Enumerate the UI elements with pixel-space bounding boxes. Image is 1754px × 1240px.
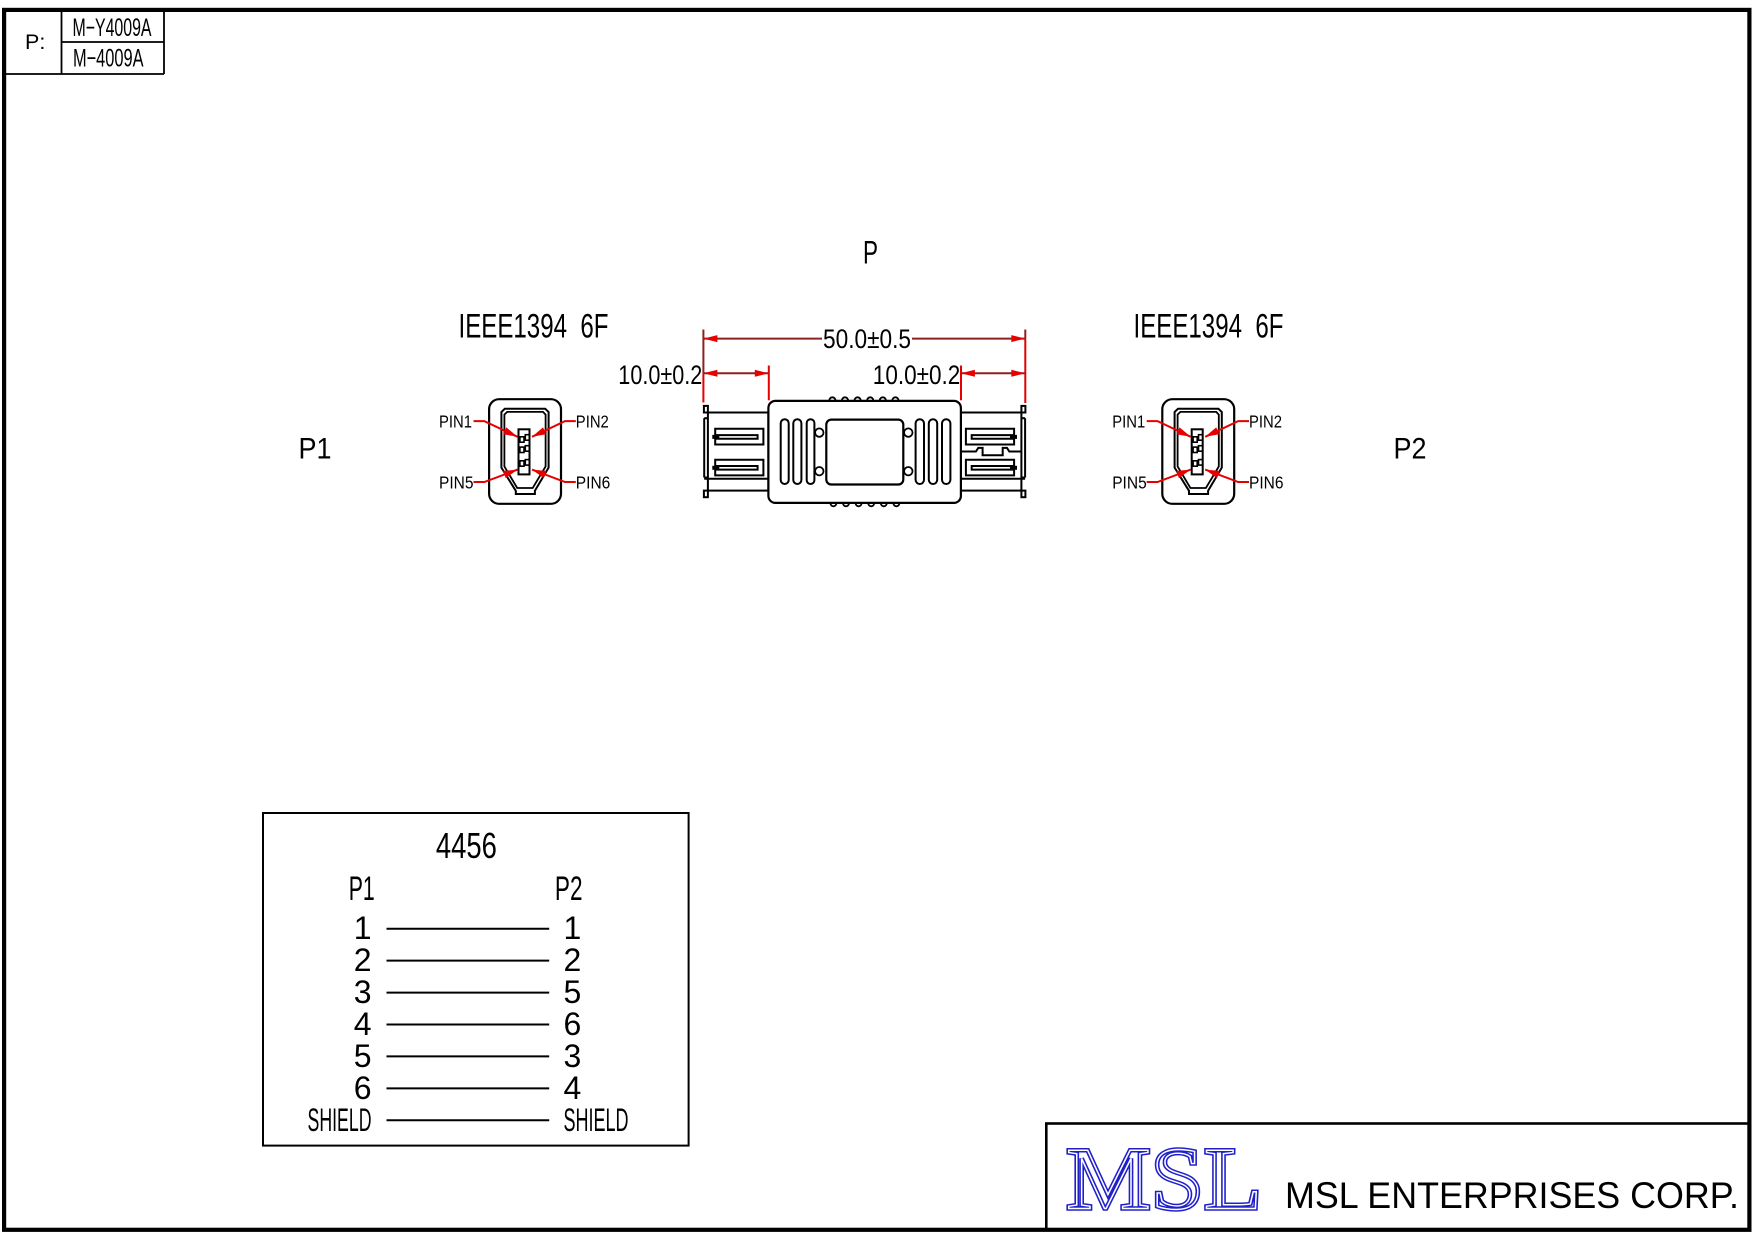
svg-text:4456: 4456 — [436, 825, 497, 866]
svg-text:M−Y4009A: M−Y4009A — [73, 14, 152, 42]
svg-text:10.0±0.2: 10.0±0.2 — [873, 360, 961, 390]
svg-text:4: 4 — [564, 1070, 582, 1106]
svg-text:6: 6 — [354, 1070, 372, 1106]
svg-text:MSL: MSL — [1066, 1131, 1262, 1229]
svg-text:MSL ENTERPRISES CORP.: MSL ENTERPRISES CORP. — [1285, 1175, 1739, 1216]
svg-text:3: 3 — [564, 1038, 582, 1074]
svg-text:6: 6 — [564, 1006, 582, 1042]
svg-text:2: 2 — [564, 942, 582, 978]
svg-text:2: 2 — [354, 942, 372, 978]
svg-text:P: P — [863, 235, 878, 271]
svg-text:P2: P2 — [555, 870, 583, 908]
svg-text:P:: P: — [25, 30, 45, 54]
svg-text:1: 1 — [354, 910, 372, 946]
svg-text:SHIELD: SHIELD — [308, 1102, 372, 1138]
svg-text:SHIELD: SHIELD — [564, 1102, 629, 1138]
svg-text:5: 5 — [564, 974, 582, 1010]
svg-text:P1: P1 — [349, 870, 375, 908]
svg-text:M−4009A: M−4009A — [73, 45, 144, 73]
svg-text:50.0±0.5: 50.0±0.5 — [823, 324, 911, 354]
svg-text:P1: P1 — [299, 433, 332, 466]
svg-text:IEEE1394 6F: IEEE1394 6F — [459, 308, 609, 346]
svg-text:5: 5 — [354, 1038, 372, 1074]
svg-text:4: 4 — [354, 1006, 372, 1042]
svg-text:10.0±0.2: 10.0±0.2 — [618, 360, 702, 390]
svg-text:1: 1 — [564, 910, 582, 946]
svg-text:IEEE1394 6F: IEEE1394 6F — [1134, 308, 1284, 346]
svg-text:3: 3 — [354, 974, 372, 1010]
svg-text:P2: P2 — [1394, 433, 1427, 466]
